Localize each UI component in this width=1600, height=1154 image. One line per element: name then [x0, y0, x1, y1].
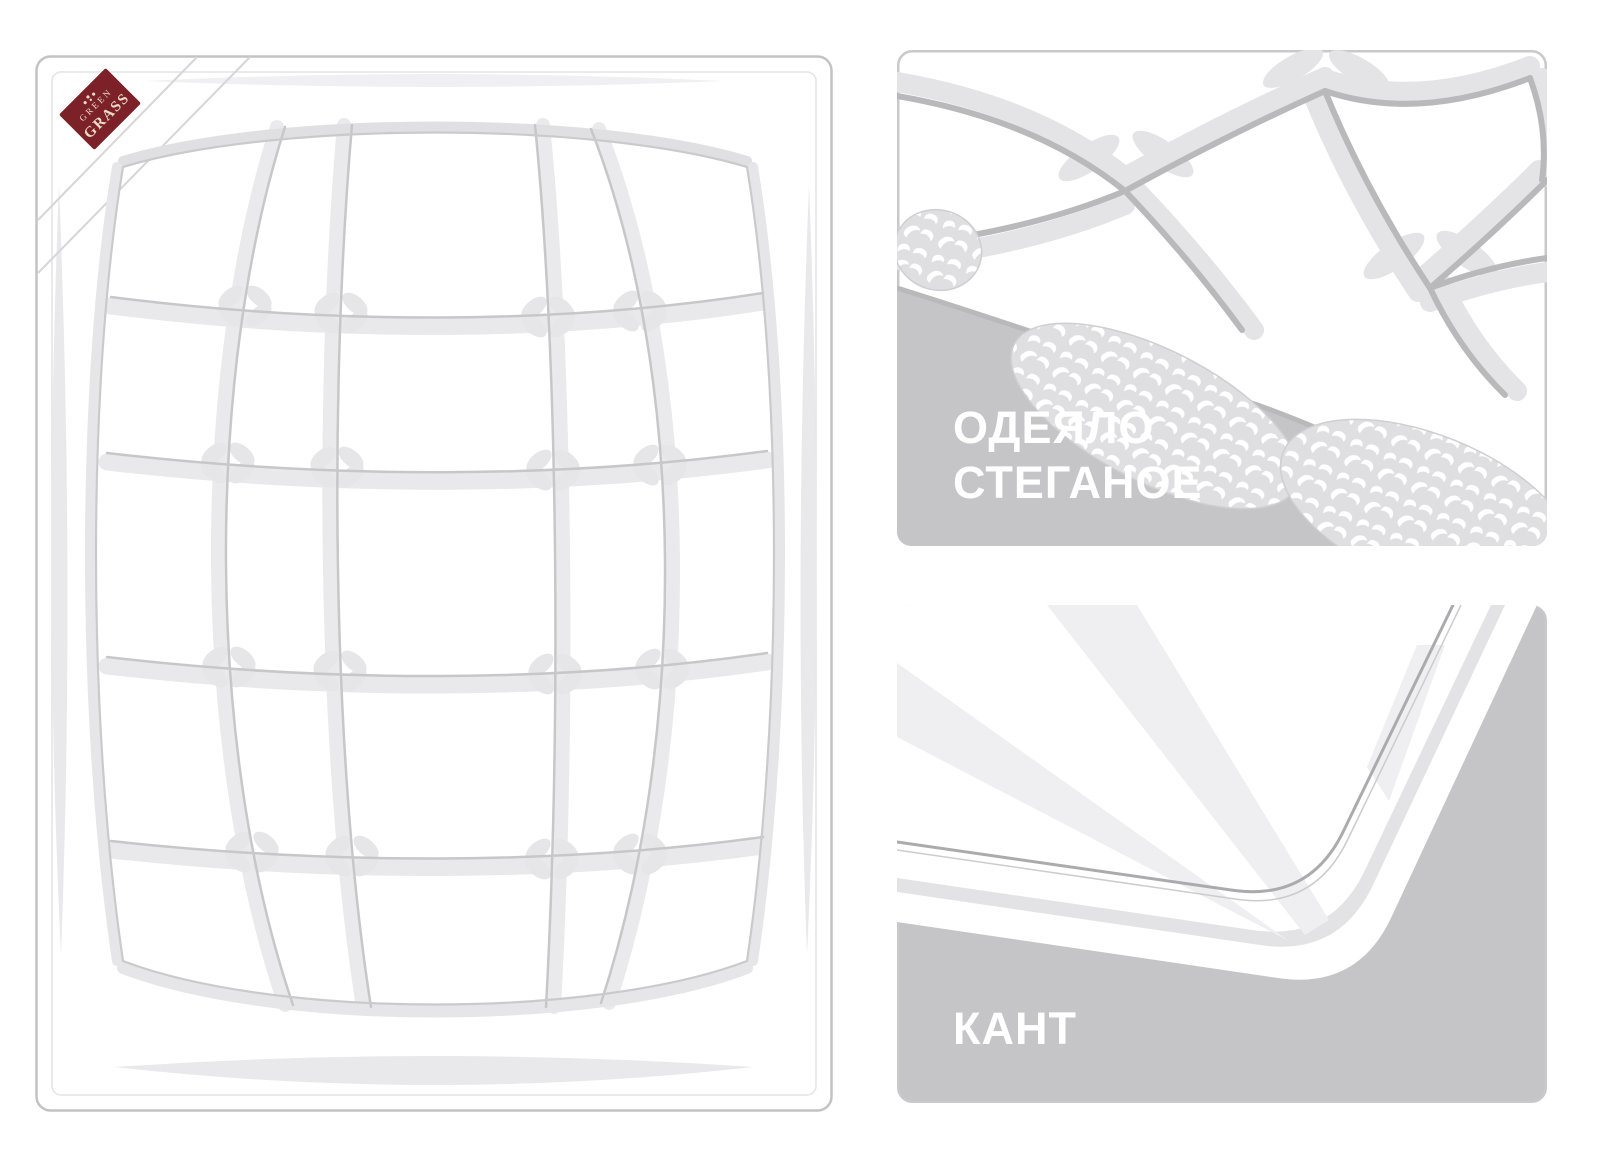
quilted-caption: ОДЕЯЛО СТЕГАНОЕ [953, 400, 1203, 510]
edging-caption-text: КАНТ [953, 1001, 1077, 1056]
product-illustration-canvas: GREEN GRASS [0, 0, 1600, 1154]
blanket-outline [37, 57, 832, 1111]
quilted-caption-line1: ОДЕЯЛО [953, 400, 1203, 455]
edge-detail-panel: КАНТ [897, 605, 1547, 1103]
quilted-caption-line2: СТЕГАНОЕ [953, 455, 1203, 510]
edging-caption: КАНТ [953, 1001, 1077, 1056]
blanket-panel: GREEN GRASS [35, 55, 833, 1112]
blanket-illustration: GREEN GRASS [35, 55, 833, 1112]
quilt-detail-panel: ОДЕЯЛО СТЕГАНОЕ [897, 50, 1547, 546]
